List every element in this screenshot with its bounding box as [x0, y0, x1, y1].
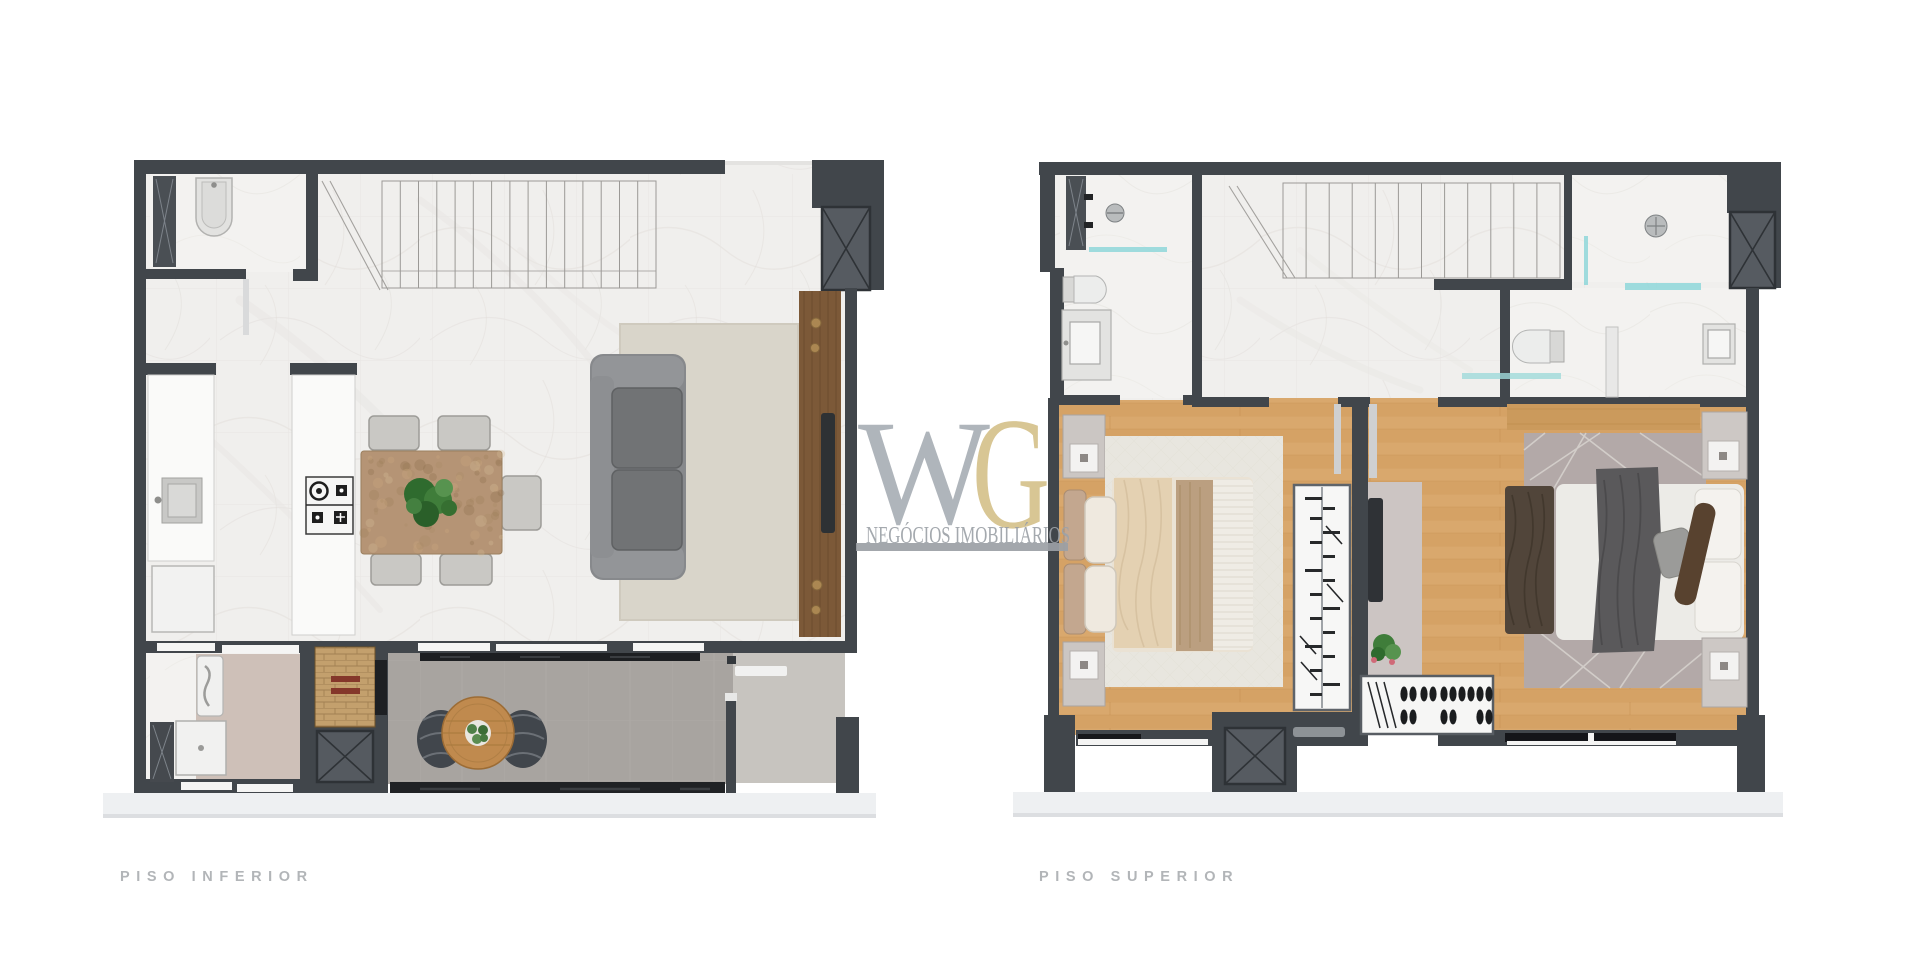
svg-text:PISO INFERIOR: PISO INFERIOR	[120, 869, 314, 885]
svg-text:PISO SUPERIOR: PISO SUPERIOR	[1039, 869, 1239, 885]
